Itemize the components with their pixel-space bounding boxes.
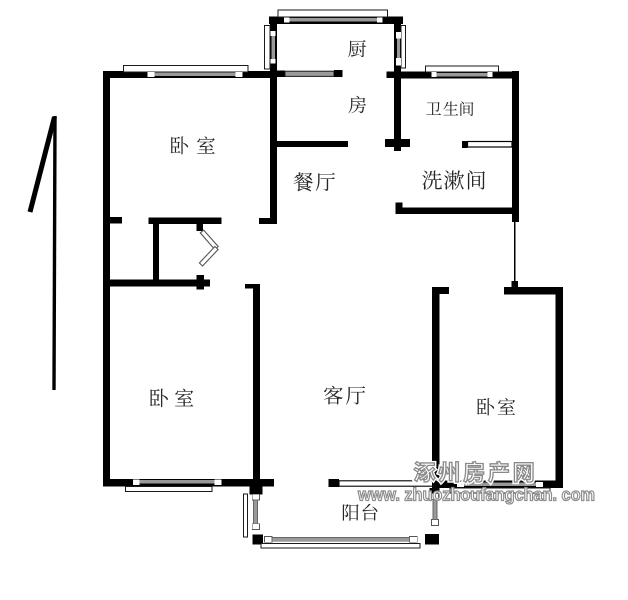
svg-text:www. zhuozhoufangchan. com: www. zhuozhoufangchan. com <box>357 485 595 505</box>
